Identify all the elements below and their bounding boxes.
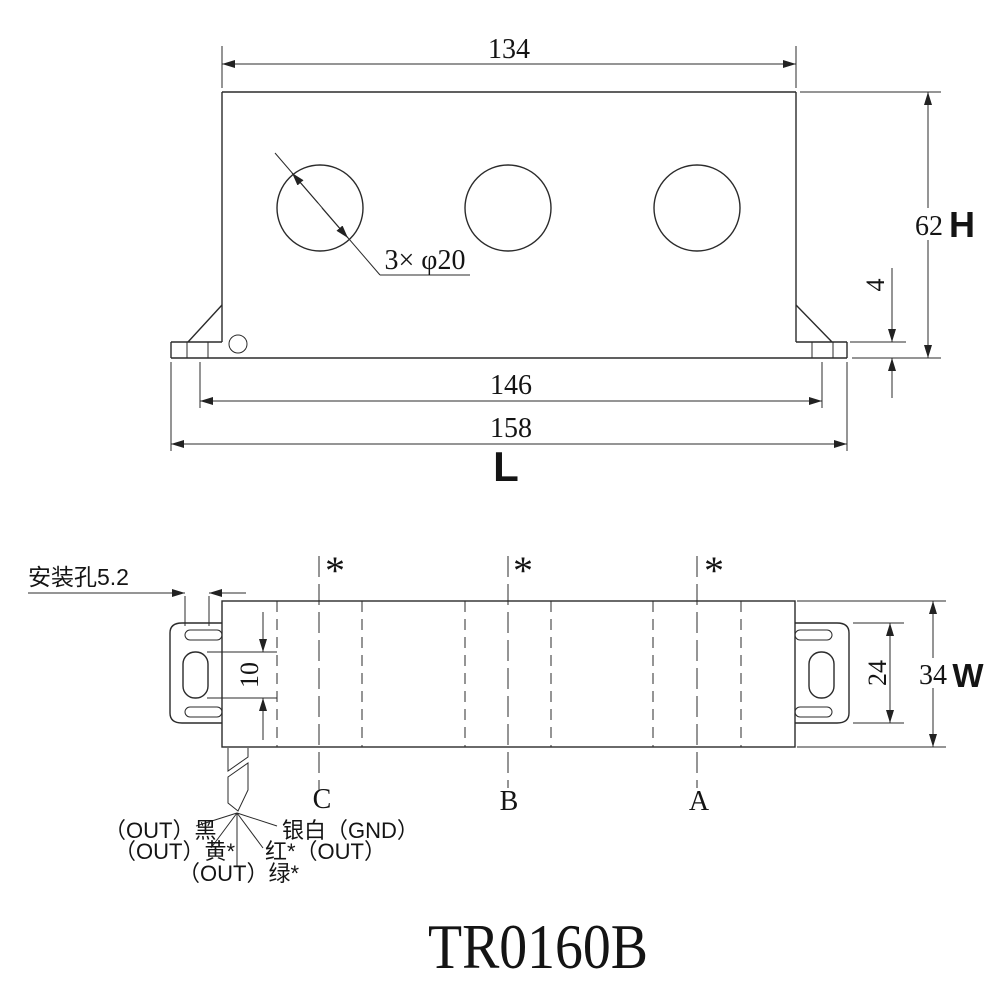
dim-24: 24 bbox=[853, 623, 904, 723]
dim-10: 10 bbox=[207, 612, 277, 740]
phase-label-b: B bbox=[500, 786, 519, 817]
dim-4: 4 bbox=[850, 268, 906, 398]
hole-callout: 3× φ20 bbox=[275, 153, 470, 276]
hole-1 bbox=[277, 165, 363, 251]
length-symbol: L bbox=[493, 443, 519, 490]
plan-view: * * * C B A 安装孔5.2 10 bbox=[28, 548, 984, 886]
through-holes bbox=[277, 165, 740, 251]
drawing-title: TR0160B bbox=[428, 911, 648, 982]
phase-centerlines: * * * C B A bbox=[313, 548, 724, 817]
plan-right-bracket bbox=[795, 623, 849, 723]
hole-callout-text: 3× φ20 bbox=[385, 245, 466, 276]
hole-3 bbox=[654, 165, 740, 251]
dim-146-text: 146 bbox=[490, 370, 532, 401]
technical-drawing: 134 62 H 4 3× φ20 bbox=[0, 0, 1000, 998]
wire-segment-lower bbox=[228, 763, 248, 811]
mounting-hole-label: 安装孔5.2 bbox=[28, 564, 129, 590]
wire-label-green: （OUT）绿* bbox=[178, 861, 299, 886]
dim-4-text: 4 bbox=[861, 279, 890, 292]
height-symbol: H bbox=[949, 204, 975, 245]
front-body-outline bbox=[171, 92, 847, 358]
asterisk-c: * bbox=[325, 548, 345, 593]
dim-158-text: 158 bbox=[490, 413, 532, 444]
drawing-sheet: 134 62 H 4 3× φ20 bbox=[0, 0, 1000, 998]
plan-left-bracket bbox=[170, 623, 222, 723]
dim-134: 134 bbox=[222, 34, 796, 88]
dim-62: 62 H bbox=[800, 92, 975, 358]
asterisk-a: * bbox=[704, 548, 724, 593]
width-symbol: W bbox=[952, 657, 984, 694]
dim-10-text: 10 bbox=[235, 662, 264, 688]
dim-134-text: 134 bbox=[488, 34, 530, 65]
wire-segment-upper bbox=[228, 748, 248, 771]
hidden-window-edges bbox=[277, 601, 741, 747]
phase-label-c: C bbox=[313, 784, 332, 815]
plan-right-slot bbox=[809, 652, 834, 698]
front-view: 134 62 H 4 3× φ20 bbox=[171, 34, 975, 490]
phase-label-a: A bbox=[689, 786, 710, 817]
front-left-hole bbox=[229, 335, 247, 353]
dim-mounting-hole: 安装孔5.2 bbox=[28, 564, 246, 626]
asterisk-b: * bbox=[513, 548, 533, 593]
plan-left-slot bbox=[183, 652, 208, 698]
dim-146: 146 bbox=[200, 362, 822, 408]
hole-2 bbox=[465, 165, 551, 251]
front-left-foot bbox=[171, 305, 247, 358]
dim-34-text: 34 bbox=[919, 660, 947, 691]
wiring: （OUT）黑 银白（GND） （OUT）黄* 红*（OUT） （OUT）绿* bbox=[104, 748, 419, 886]
dim-24-text: 24 bbox=[863, 660, 892, 686]
front-right-foot bbox=[796, 305, 847, 358]
dim-62-text: 62 bbox=[915, 211, 943, 242]
